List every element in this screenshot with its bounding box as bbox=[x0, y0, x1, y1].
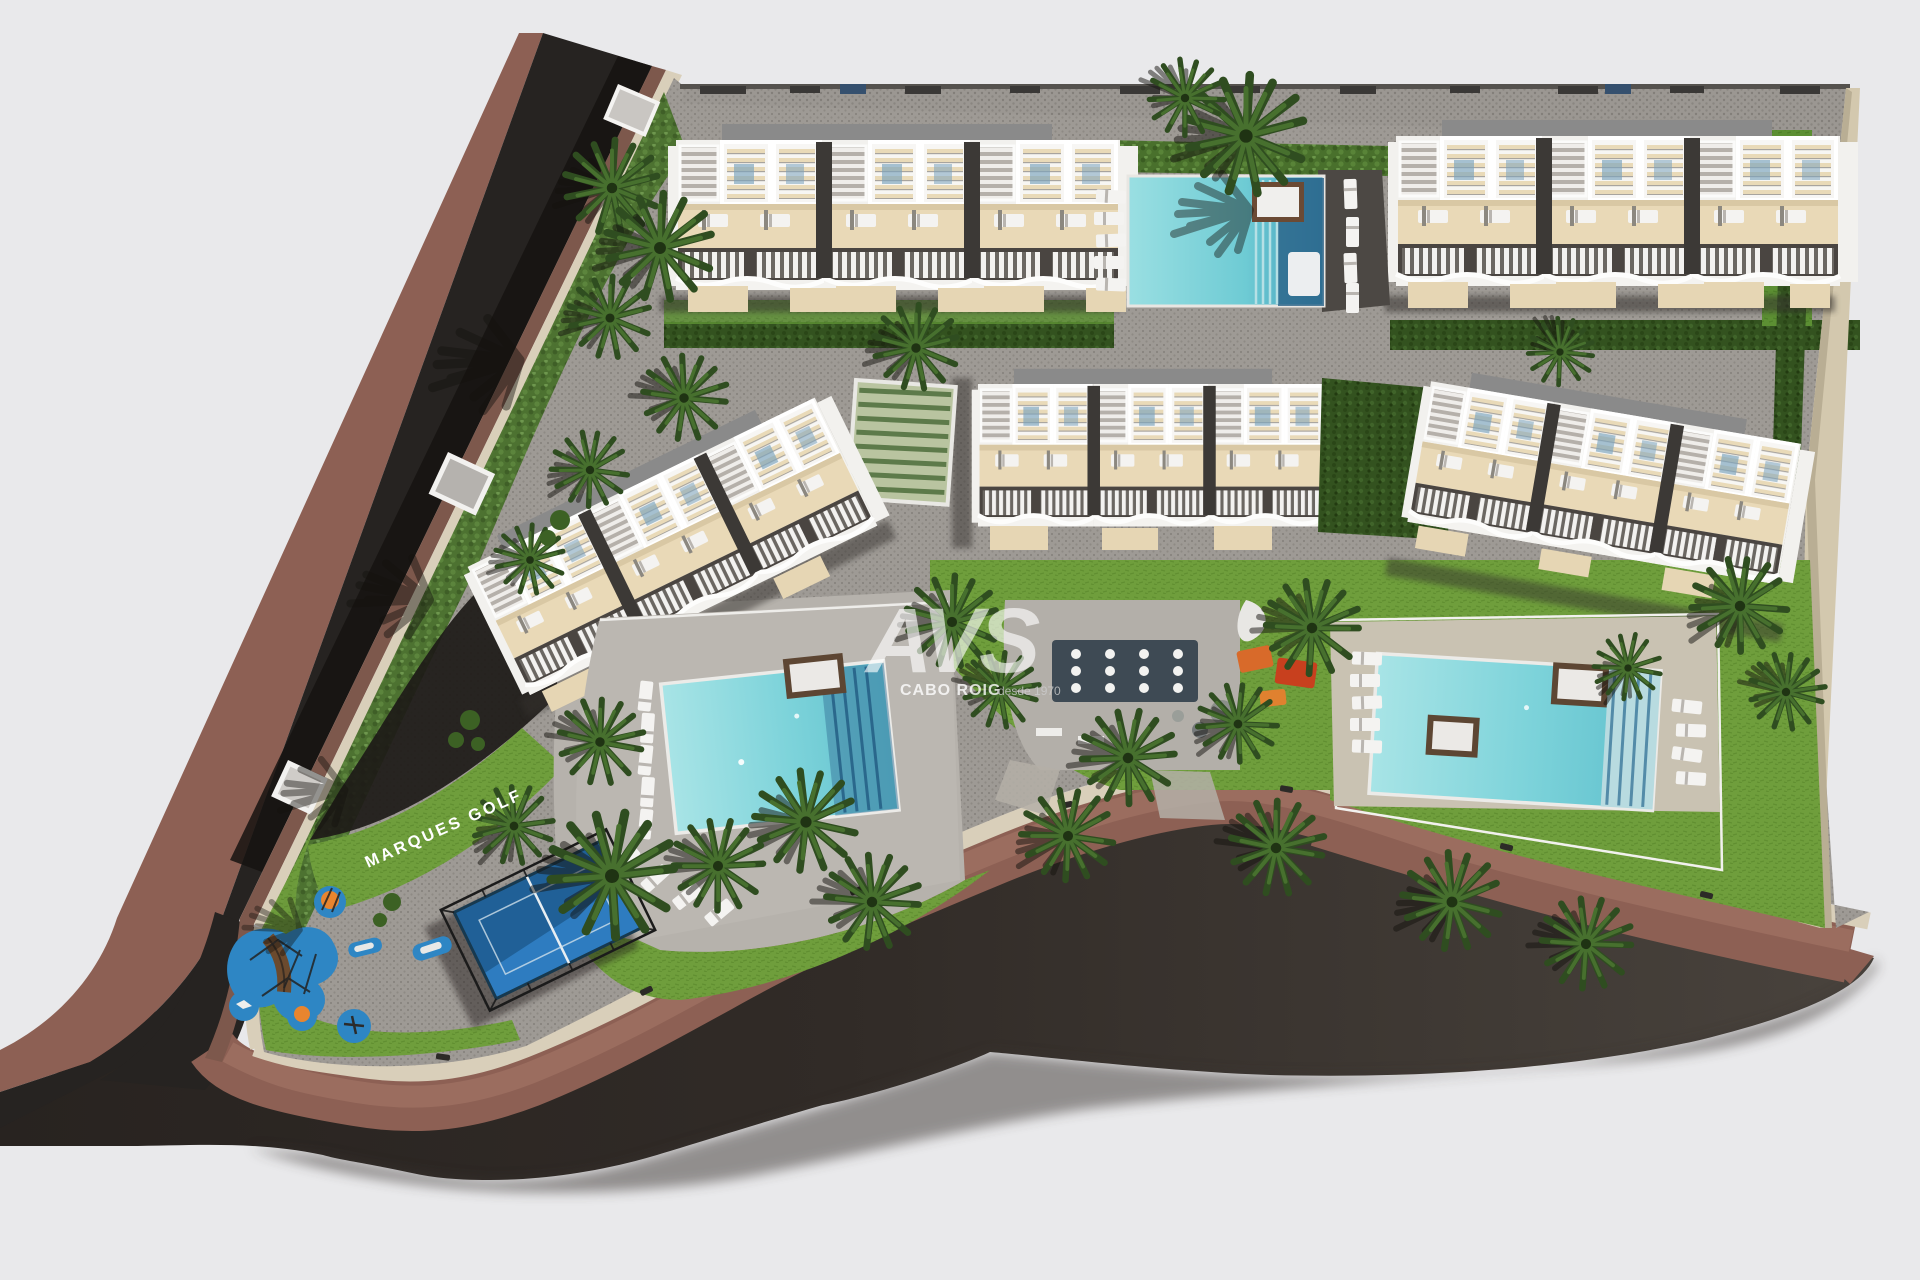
svg-text:AVS: AVS bbox=[864, 590, 1040, 692]
svg-text:CABO ROIG: CABO ROIG bbox=[900, 682, 1001, 699]
svg-text:desde 1970: desde 1970 bbox=[998, 684, 1061, 698]
